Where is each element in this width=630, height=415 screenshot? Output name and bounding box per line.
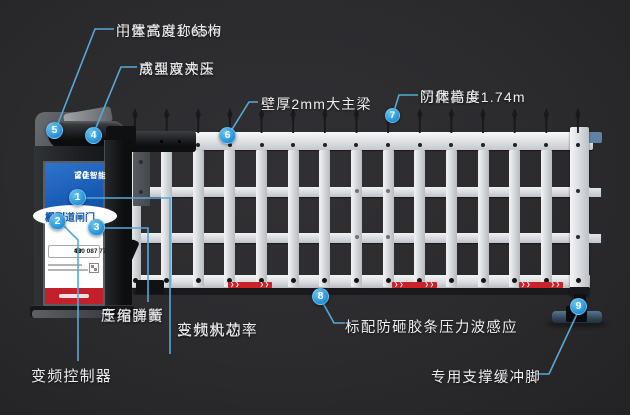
bottom-rail-bolt <box>576 278 581 283</box>
rail-mount-stub <box>589 234 604 243</box>
spring-bracket <box>136 280 164 294</box>
stripe-chevron: ❯❯ <box>230 282 240 288</box>
fence-bar <box>383 150 394 287</box>
stripe-chevron: ❯❯ <box>551 282 561 288</box>
fence-bar <box>224 150 235 287</box>
boom-bolt <box>178 140 181 143</box>
fence-bar <box>351 150 362 287</box>
rail-mount-stub <box>589 188 604 197</box>
callout-badge-5: 5 <box>46 122 63 139</box>
stripe-chevron: ❯❯ <box>394 282 404 288</box>
plate-bolt <box>139 160 143 164</box>
cabinet-side-pillar <box>104 140 132 314</box>
fence-main-beam <box>128 132 593 150</box>
mid-rail-bolt <box>355 189 359 193</box>
beam-bolt <box>481 143 485 147</box>
callout-badge-3: 3 <box>88 219 105 236</box>
reflective-stripe: ❯❯❯❯ <box>392 282 437 288</box>
ground-base-bar <box>32 310 104 318</box>
bottom-rail-bolt <box>291 278 296 283</box>
post-rail-bolt <box>576 189 580 193</box>
fine-print-line <box>48 269 88 271</box>
fence-bar <box>541 150 552 287</box>
fence-spear <box>477 108 490 133</box>
beam-bolt <box>260 143 264 147</box>
callout-badge-1: 1 <box>69 189 86 206</box>
callout-badge-6: 6 <box>219 127 236 144</box>
stripe-chevron: ❯❯ <box>260 282 270 288</box>
callout-badge-7: 7 <box>385 108 400 123</box>
beam-bolt <box>418 143 422 147</box>
fence-bar <box>193 150 204 287</box>
hotline-box: ☎ 400 087 7707 <box>48 245 100 258</box>
bottom-rail-bolt <box>196 278 201 283</box>
fence-bottom-shadow <box>133 288 585 295</box>
barrier-gate-feature-diagram: ❯❯❯❯❯❯❯❯❯❯❯❯ 百佳智能|20 系列栅型道闸门 ☎ 400 087 7… <box>0 0 630 415</box>
callout-label-2: 变频控制器 <box>31 366 112 387</box>
callout-label-6: 壁厚2mm大主梁 <box>261 94 372 114</box>
label-spec: 门体高度1.65m <box>116 21 222 41</box>
fence-bar <box>319 150 330 287</box>
fence-spear <box>413 108 426 133</box>
callout-label-9: 专用支撑缓冲脚 <box>431 366 541 387</box>
stripe-chevron: ❯❯ <box>425 282 435 288</box>
reflective-stripe: ❯❯❯❯ <box>228 282 272 288</box>
fence-bar <box>288 150 299 287</box>
fence-end-post <box>570 127 589 296</box>
fence-spear <box>508 108 521 133</box>
fence-spear <box>160 108 173 133</box>
fence-bar <box>414 150 425 287</box>
fence-bar <box>256 150 267 287</box>
bottom-rail-bolt <box>386 278 391 283</box>
bottom-rail-bolt <box>449 278 454 283</box>
label-line-2: 压缩弹簧 <box>101 307 164 328</box>
fence-spear <box>192 108 205 133</box>
bottom-rail-bolt <box>481 278 486 283</box>
fine-print-line <box>48 264 82 266</box>
reflective-stripe: ❯❯❯❯ <box>519 282 563 288</box>
bottom-rail-bolt <box>354 278 359 283</box>
callout-badge-4: 4 <box>85 127 102 144</box>
callout-label-8: 标配防砸胶条压力波感应 <box>345 316 518 337</box>
plate-bolt <box>139 190 143 194</box>
fence-spear <box>540 108 553 133</box>
beam-end-cap <box>588 132 602 143</box>
mid-rail-bolt <box>355 235 359 239</box>
callout-badge-9: 9 <box>570 298 587 315</box>
post-rail-bolt <box>576 235 580 239</box>
label-line-2: 变频机芯 <box>177 320 242 341</box>
fence-bar <box>509 150 520 287</box>
hotline-number: 400 087 7707 <box>74 246 114 257</box>
fence-bar <box>161 150 172 287</box>
boom-bolt <box>160 140 163 143</box>
label-spec: 成型双夹头 <box>139 59 215 79</box>
callout-badge-8: 8 <box>312 288 329 305</box>
fence-bar <box>478 150 489 287</box>
beam-bolt <box>513 143 517 147</box>
red-band-slogan-bar <box>59 294 89 298</box>
beam-bolt <box>323 143 327 147</box>
beam-bolt <box>576 143 580 147</box>
poster-red-band <box>45 288 103 304</box>
label-spec: 门体高度1.74m <box>420 87 526 107</box>
stripe-chevron: ❯❯ <box>521 282 531 288</box>
brand-logo-year: 20 <box>76 170 88 181</box>
poster-fine-print <box>48 263 100 277</box>
fence-spear <box>445 108 458 133</box>
qr-code <box>89 263 99 273</box>
callout-badge-2: 2 <box>49 213 66 230</box>
fence-bar <box>446 150 457 287</box>
